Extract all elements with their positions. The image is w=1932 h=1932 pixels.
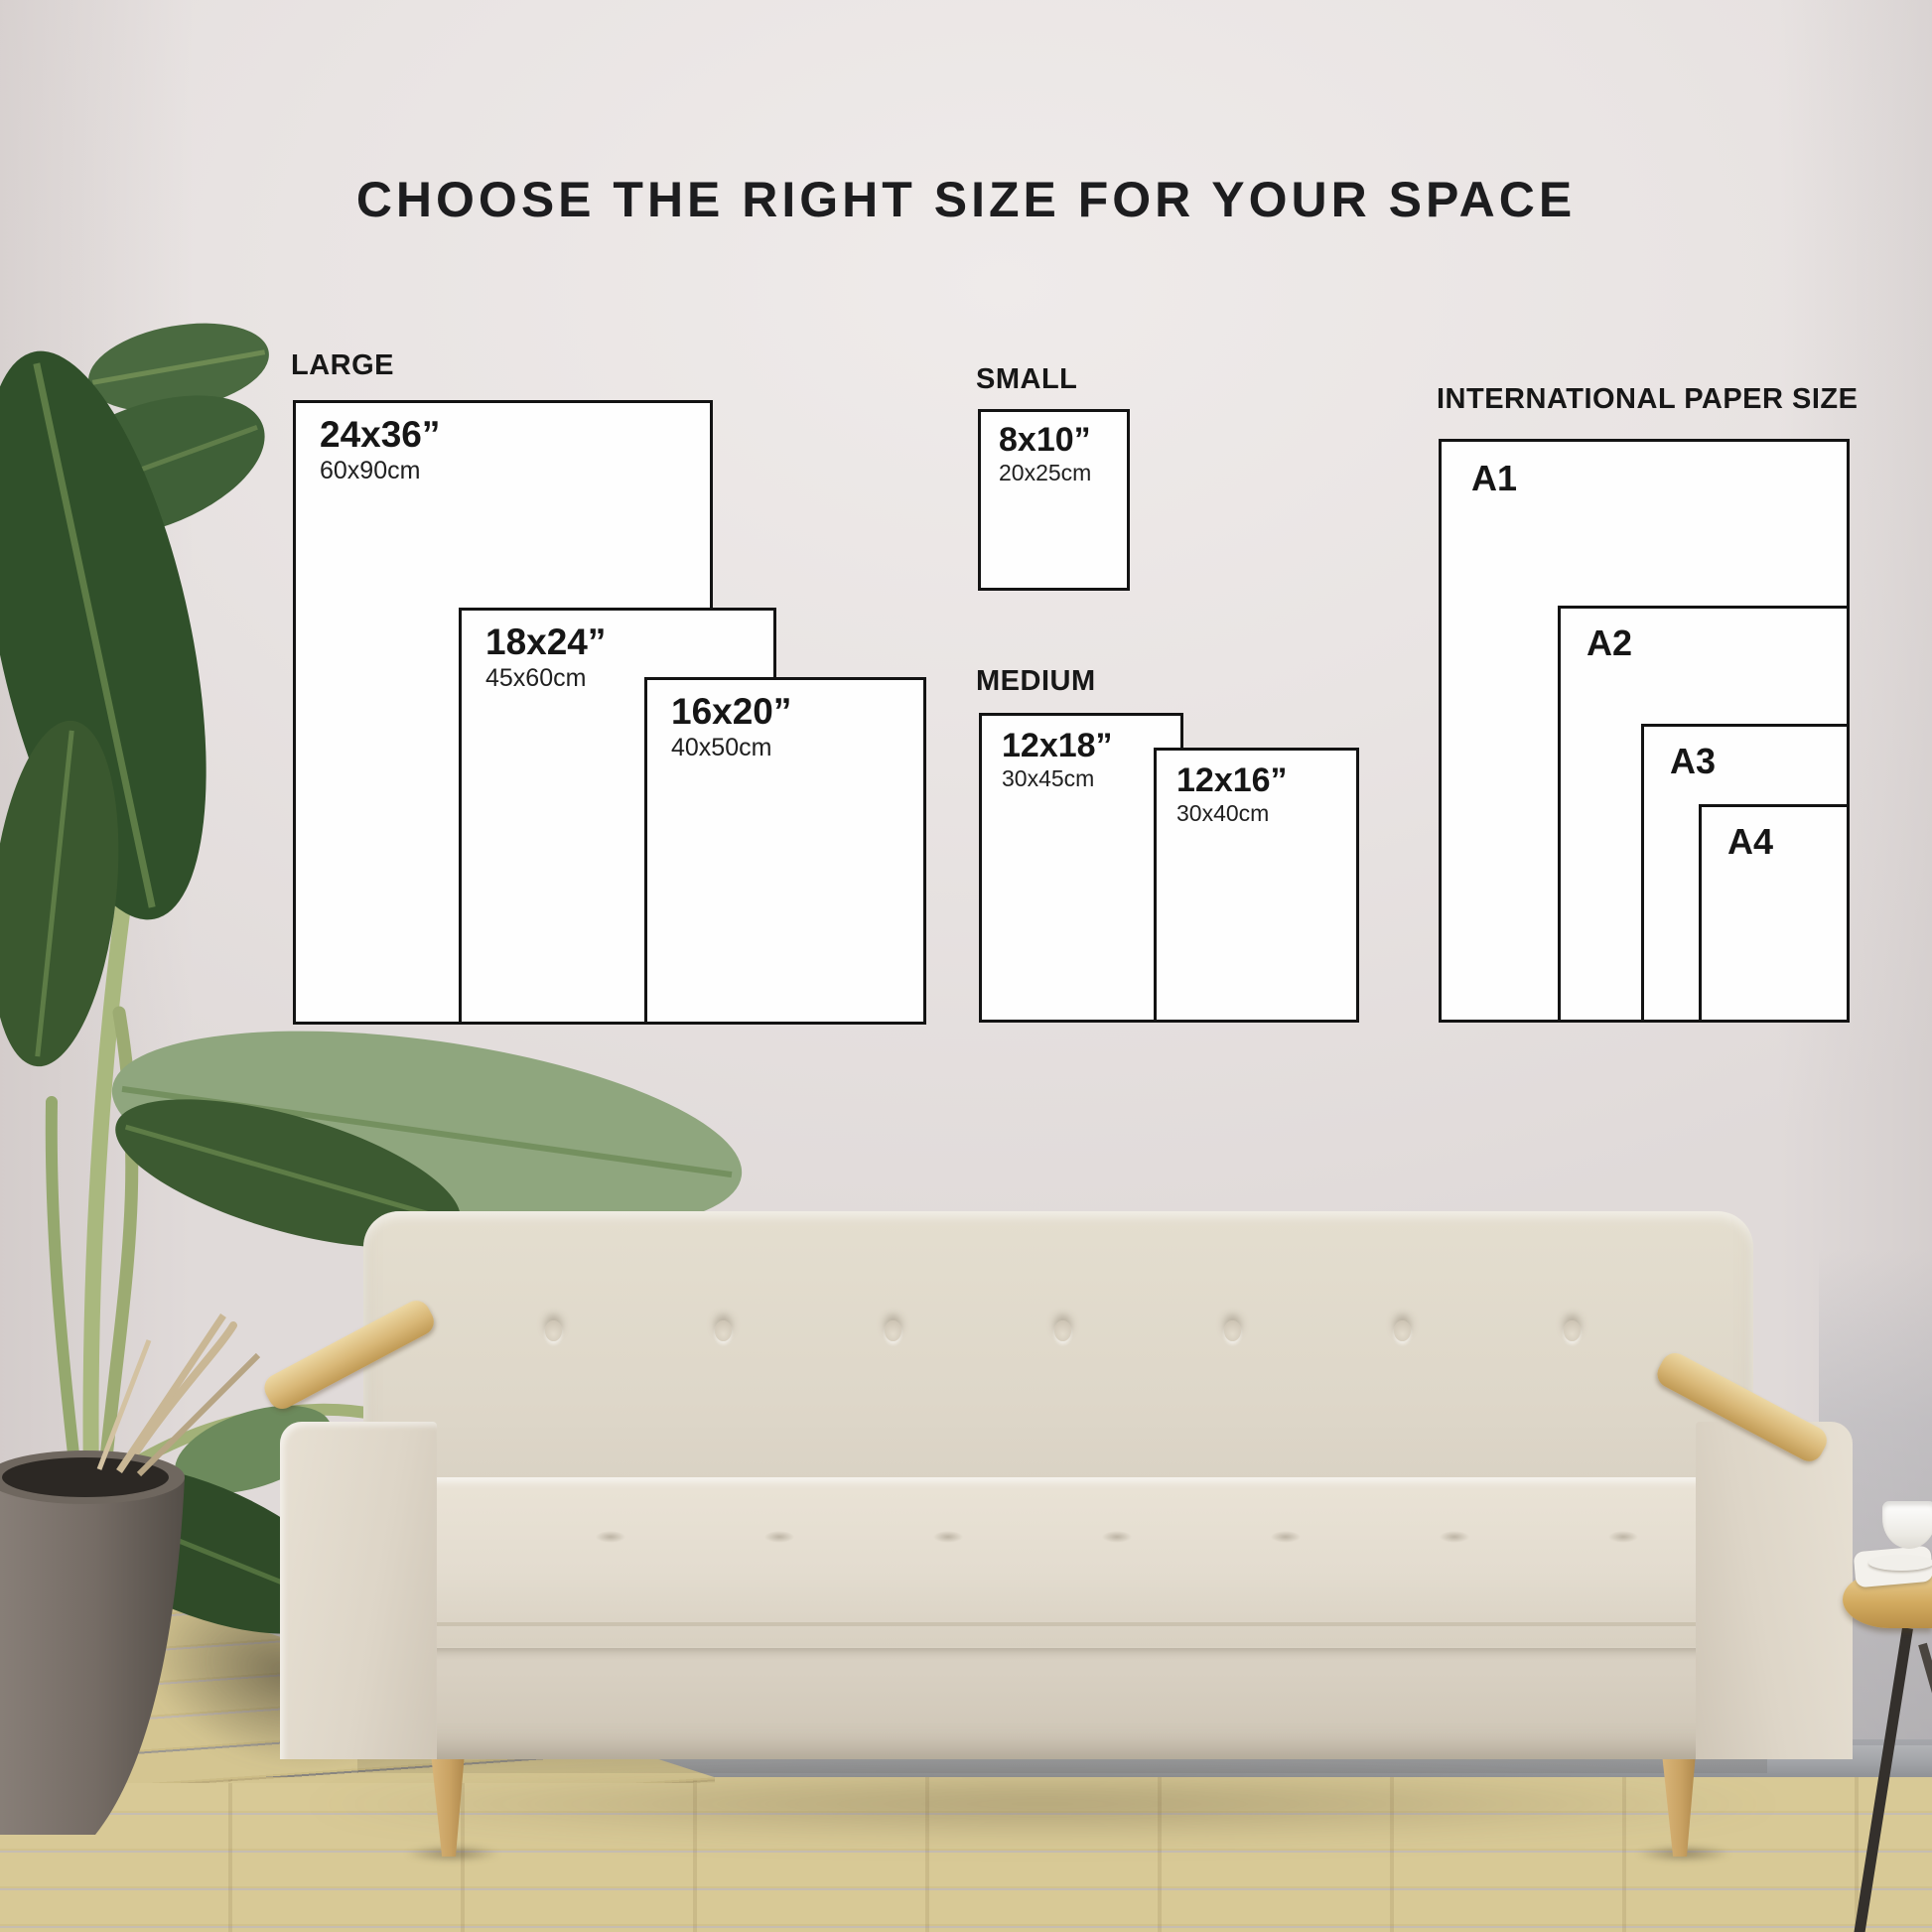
group-label-medium: MEDIUM: [976, 665, 1096, 698]
size-box-16x20: 16x20” 40x50cm: [644, 677, 926, 1025]
seat-dimple: [596, 1531, 625, 1543]
size-inches: 12x18”: [1002, 728, 1113, 764]
paper-size-name: A3: [1670, 741, 1716, 782]
sofa-tuft-button: [1054, 1320, 1071, 1341]
seat-dimple: [1271, 1531, 1301, 1543]
sofa-arm-right: [1696, 1422, 1853, 1759]
sofa-arm-left: [280, 1422, 437, 1759]
room-scene: CHOOSE THE RIGHT SIZE FOR YOUR SPACE LAR…: [0, 0, 1932, 1932]
seat-dimple: [764, 1531, 794, 1543]
sofa-tuft-button: [715, 1320, 732, 1341]
seat-dimple: [1440, 1531, 1469, 1543]
paper-size-name: A2: [1587, 622, 1632, 664]
page-title: CHOOSE THE RIGHT SIZE FOR YOUR SPACE: [0, 171, 1932, 228]
size-inches: 24x36”: [320, 415, 440, 456]
seat-dimple: [1102, 1531, 1132, 1543]
group-label-large: LARGE: [291, 349, 394, 382]
size-cm: 30x45cm: [1002, 765, 1113, 792]
sofa-tuft-button: [1224, 1320, 1241, 1341]
size-box-12x16: 12x16” 30x40cm: [1154, 748, 1359, 1023]
size-inches: 16x20”: [671, 692, 791, 733]
size-cm: 40x50cm: [671, 734, 791, 762]
sofa-tuft-button: [545, 1320, 562, 1341]
size-box-8x10: 8x10” 20x25cm: [978, 409, 1130, 591]
sofa-cushion-piping: [377, 1622, 1759, 1626]
sofa-tuft-button: [885, 1320, 901, 1341]
size-cm: 20x25cm: [999, 460, 1091, 486]
size-inches: 8x10”: [999, 422, 1091, 459]
size-inches: 18x24”: [485, 622, 606, 663]
group-label-international: INTERNATIONAL PAPER SIZE: [1437, 383, 1858, 416]
size-cm: 45x60cm: [485, 664, 606, 693]
saucer: [1868, 1555, 1932, 1571]
size-inches: 12x16”: [1176, 762, 1288, 799]
group-label-small: SMALL: [976, 363, 1077, 396]
sofa-tuft-button: [1564, 1320, 1581, 1341]
size-box-a4: A4: [1699, 804, 1850, 1023]
sofa-tuft-button: [1394, 1320, 1411, 1341]
size-cm: 60x90cm: [320, 457, 440, 485]
seat-dimple: [933, 1531, 963, 1543]
paper-size-name: A4: [1727, 821, 1773, 863]
size-cm: 30x40cm: [1176, 800, 1288, 827]
seat-dimple: [1608, 1531, 1638, 1543]
paper-size-name: A1: [1471, 458, 1517, 499]
